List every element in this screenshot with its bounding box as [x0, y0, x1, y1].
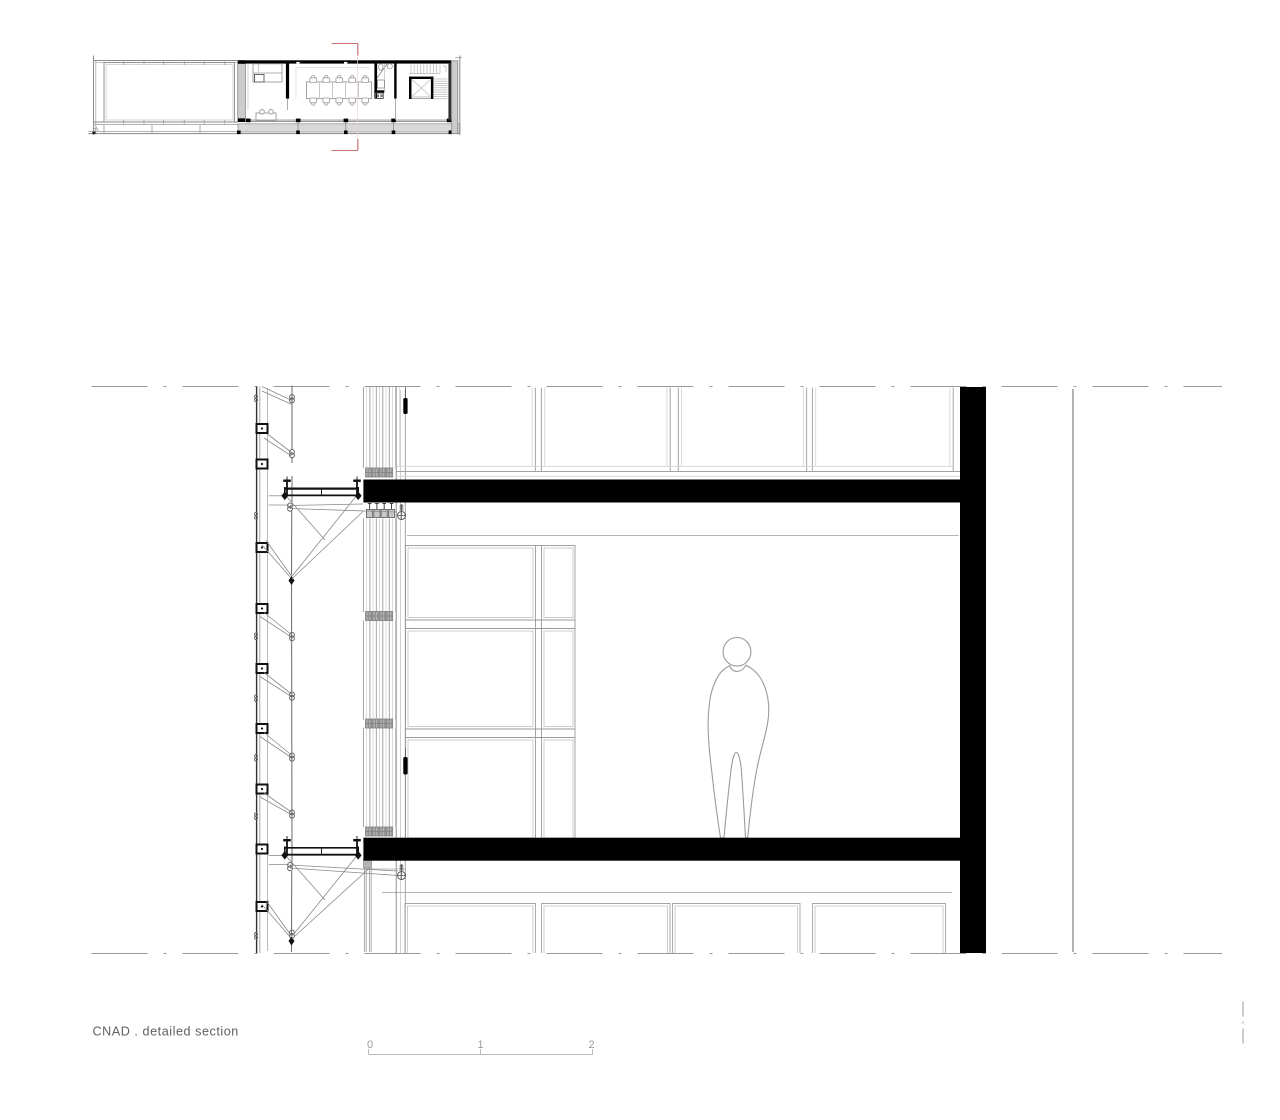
svg-text:CNAD . detailed section: CNAD . detailed section: [93, 1025, 239, 1039]
svg-text:0: 0: [367, 1039, 373, 1051]
svg-text:1: 1: [478, 1039, 484, 1051]
svg-text:2: 2: [589, 1039, 595, 1051]
